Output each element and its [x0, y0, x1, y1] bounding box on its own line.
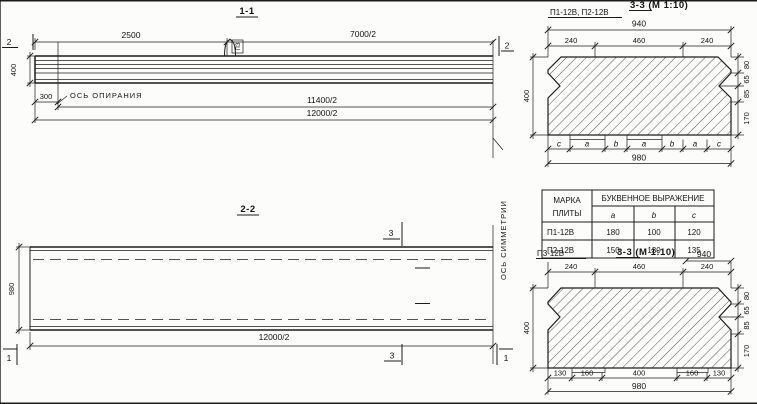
view-1-1: 1-1 ПЗ 2500 7000/2: [2, 6, 514, 123]
dim-130-left: 130: [554, 369, 567, 378]
section-3-3-title-top: 3-3 (М 1:10): [630, 0, 688, 11]
seg-b-1: b: [614, 140, 619, 149]
seg-a-3: a: [693, 140, 698, 149]
dim-85: 85: [742, 90, 751, 98]
dim-400-mid: 400: [633, 369, 646, 378]
dim-300: 300: [40, 92, 53, 101]
dim-980-p3-label: 980: [632, 381, 646, 391]
dim-460: 460: [633, 36, 646, 45]
row1-a: 180: [606, 228, 620, 237]
table-header-plity: ПЛИТЫ: [553, 209, 582, 218]
hook-flag-label: ПЗ: [236, 42, 242, 50]
dim-170-p3: 170: [742, 345, 751, 358]
symmetry-axis-label: ОСЬ СИММЕТРИИ: [499, 200, 508, 280]
table-col-b: b: [652, 211, 657, 220]
dim-7000-half: 7000/2: [350, 29, 376, 39]
row1-c: 120: [687, 228, 701, 237]
dim-12000-2-label: 12000/2: [259, 332, 290, 342]
cut-label-2-left: 2: [7, 37, 12, 47]
dim-160-left: 160: [581, 369, 594, 378]
dim-170: 170: [742, 112, 751, 125]
drawing-sheet: 1-1 ПЗ 2500 7000/2: [0, 0, 757, 404]
dim-top-row: 2500 7000/2: [32, 29, 496, 56]
seg-c-2: c: [717, 140, 721, 149]
dim-length-12000: 12000/2: [27, 332, 496, 350]
seg-b-2: b: [670, 140, 675, 149]
dim-940-p3-label: 940: [697, 249, 711, 259]
cut-marker-3-top: 3: [383, 222, 402, 246]
dim-12000-label: 12000/2: [307, 108, 338, 118]
row1-mark: П1-12В: [547, 228, 574, 237]
plan-outline: [30, 247, 493, 330]
plate-marks-label: П1-12В, П2-12В: [550, 8, 609, 17]
dim-11400-label: 11400/2: [307, 95, 337, 105]
seg-a-1: a: [585, 140, 590, 149]
dim-2500: 2500: [122, 30, 141, 40]
dim-240-right-p3: 240: [701, 262, 714, 271]
symmetry-axis: ОСЬ СИММЕТРИИ: [493, 40, 508, 364]
dim-400-p3-label: 400: [522, 322, 531, 335]
dim-80: 80: [742, 61, 751, 69]
end-marker-1-right: 1: [497, 344, 513, 365]
seg-a-2: a: [642, 140, 647, 149]
support-axis: 300 ОСЬ ОПИРАНИЯ: [32, 42, 143, 110]
table-row: П1-12В 180 100 120: [547, 228, 701, 237]
row1-b: 100: [647, 228, 661, 237]
dim-80-p3: 80: [742, 292, 751, 300]
dim-460-p3: 460: [633, 262, 646, 271]
cut-label-2-right: 2: [505, 41, 510, 51]
support-axis-label: ОСЬ ОПИРАНИЯ: [70, 91, 143, 100]
plate-mark-p3-label: П3-12В: [537, 249, 564, 258]
dim-12000-half: 12000/2: [32, 108, 496, 123]
table-header-expression: БУКВЕННОЕ ВЫРАЖЕНИЕ: [602, 194, 705, 203]
detail-section-p3: П3-12В 3-3 (М 1:10) 940 240 460 240: [522, 247, 751, 395]
dim-400-left-label: 400: [522, 90, 531, 103]
dim-height-400: 400: [9, 52, 35, 87]
engineering-drawing: 1-1 ПЗ 2500 7000/2: [0, 0, 757, 404]
dim-940-top: 940: [545, 19, 734, 34]
table-col-c: c: [692, 211, 696, 220]
cut-label-3-top: 3: [389, 228, 394, 238]
seg-c-1: c: [557, 140, 561, 149]
table-header-marka: МАРКА: [553, 196, 581, 205]
dim-400-label: 400: [9, 64, 18, 77]
view-2-2: 2-2 980 12000/2: [3, 204, 513, 365]
dim-85-p3: 85: [742, 321, 751, 329]
dim-height-400-p3: 400: [522, 284, 548, 372]
dim-160-right: 160: [686, 369, 699, 378]
dim-height-400-left: 400: [522, 53, 548, 139]
cut-marker-2-right: 2: [499, 36, 514, 56]
cut-marker-3-bottom: 3: [384, 344, 402, 365]
end-label-1-left: 1: [7, 353, 12, 363]
dim-240-460-240-p3: 240 460 240: [545, 262, 734, 288]
section-body-hatched: [548, 57, 731, 135]
dim-980-bottom: 980: [545, 153, 734, 167]
dim-240-left: 240: [565, 36, 578, 45]
detail-section-p1-p2: 3-3 (М 1:10) П1-12В, П2-12В 940 240 460 …: [522, 0, 751, 167]
section-body-hatched-p3: [548, 288, 731, 368]
dim-width-980: 980: [7, 243, 30, 334]
dim-980-bottom-label: 980: [632, 153, 646, 163]
view-1-1-title: 1-1: [239, 6, 254, 17]
end-label-1-right: 1: [504, 353, 509, 363]
dim-980-overall-p3: 980: [545, 381, 734, 395]
dim-130-right: 130: [713, 369, 726, 378]
cut-marker-2-left: 2: [2, 34, 33, 50]
dim-65: 65: [742, 75, 751, 83]
slab-elevation-lines: [35, 56, 493, 123]
view-2-2-title: 2-2: [240, 204, 255, 215]
dim-940-label: 940: [632, 19, 646, 29]
dim-65-p3: 65: [742, 306, 751, 314]
dim-240-460-240-top: 240 460 240: [545, 26, 734, 57]
end-marker-1-left: 1: [3, 344, 17, 365]
section-3-3-title-bottom: 3-3 (М 1:10): [617, 247, 675, 258]
cut-label-3-bottom: 3: [390, 351, 395, 361]
dim-980-label: 980: [7, 283, 16, 296]
table-col-a: a: [611, 211, 616, 220]
dim-240-left-p3: 240: [565, 262, 578, 271]
dim-240-right: 240: [701, 36, 714, 45]
